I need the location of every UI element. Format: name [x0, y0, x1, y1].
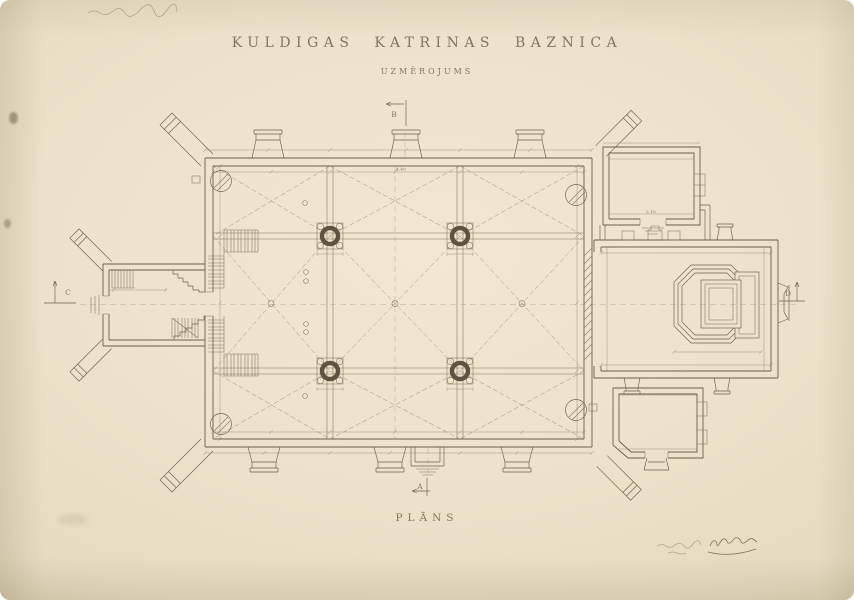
- corner-buttresses: [70, 110, 642, 500]
- entrance-steps: [91, 295, 99, 315]
- column: [317, 358, 343, 391]
- dimension-label: 4.40: [396, 167, 406, 172]
- engaged-column: [566, 400, 587, 421]
- section-label-b: B: [391, 110, 397, 119]
- altar-table: [701, 280, 741, 328]
- wall-pier-south: [589, 404, 597, 411]
- drawing-caption: PLĀNS: [395, 511, 458, 524]
- dimension-label: 2.10: [646, 209, 656, 214]
- section-label-c: C: [65, 288, 71, 297]
- drawing-title: KULDIGAS KATRINAS BAZNICA: [232, 35, 622, 51]
- vault-boss: [268, 301, 274, 307]
- column: [447, 358, 473, 391]
- floor-plan-drawing: 4.40 2.10 B A C D KULDIGAS KATRINAS BAZN…: [0, 0, 854, 600]
- engaged-column: [566, 185, 587, 206]
- column: [447, 223, 473, 256]
- chapel-pilaster: [697, 402, 707, 416]
- south-chapel: [613, 388, 707, 470]
- engaged-columns: [211, 171, 587, 435]
- engaged-column: [211, 171, 232, 192]
- scanned-sheet: 4.40 2.10 B A C D KULDIGAS KATRINAS BAZN…: [0, 0, 854, 600]
- drawing-subtitle: UZMĒROJUMS: [381, 67, 474, 76]
- stair-southwest: [224, 354, 258, 376]
- chancel: [594, 224, 789, 394]
- column: [317, 223, 343, 256]
- stair-northwest: [224, 230, 258, 252]
- porch-stair-north: [112, 270, 135, 288]
- lettering: KULDIGAS KATRINAS BAZNICA UZMĒROJUMS PLĀ…: [232, 35, 622, 524]
- section-marker-b: B: [386, 100, 406, 126]
- axis-lines: [80, 132, 800, 478]
- altar: [674, 265, 759, 343]
- porch-stair-south: [172, 318, 198, 338]
- section-label-d: D: [785, 289, 791, 298]
- wall-hatch: [584, 248, 592, 360]
- handwritten-note-bottom: [657, 541, 701, 554]
- paper-stain: [4, 219, 11, 228]
- stairs: [208, 230, 258, 376]
- vault-grid: [213, 166, 584, 439]
- wall-pier-north: [192, 176, 200, 183]
- south-portal: [411, 447, 444, 475]
- section-label-a: A: [416, 482, 423, 491]
- section-marker-c: C: [44, 281, 76, 303]
- nave-walls: [192, 158, 597, 447]
- portal-splay-north: [168, 270, 205, 292]
- dimension-lines: 4.40 2.10: [203, 143, 773, 455]
- portal-splay-south: [168, 316, 205, 340]
- chapel-porch: [644, 458, 669, 470]
- vault-ribs: [213, 166, 584, 439]
- handwritten-note-top-left: [88, 4, 177, 17]
- handwritten-signature: [708, 538, 757, 555]
- paper-stain: [9, 112, 18, 124]
- paper-smudge: [58, 514, 88, 525]
- chapel-pilaster: [697, 430, 707, 444]
- section-marker-a: A: [412, 478, 430, 496]
- west-porch: [91, 264, 205, 346]
